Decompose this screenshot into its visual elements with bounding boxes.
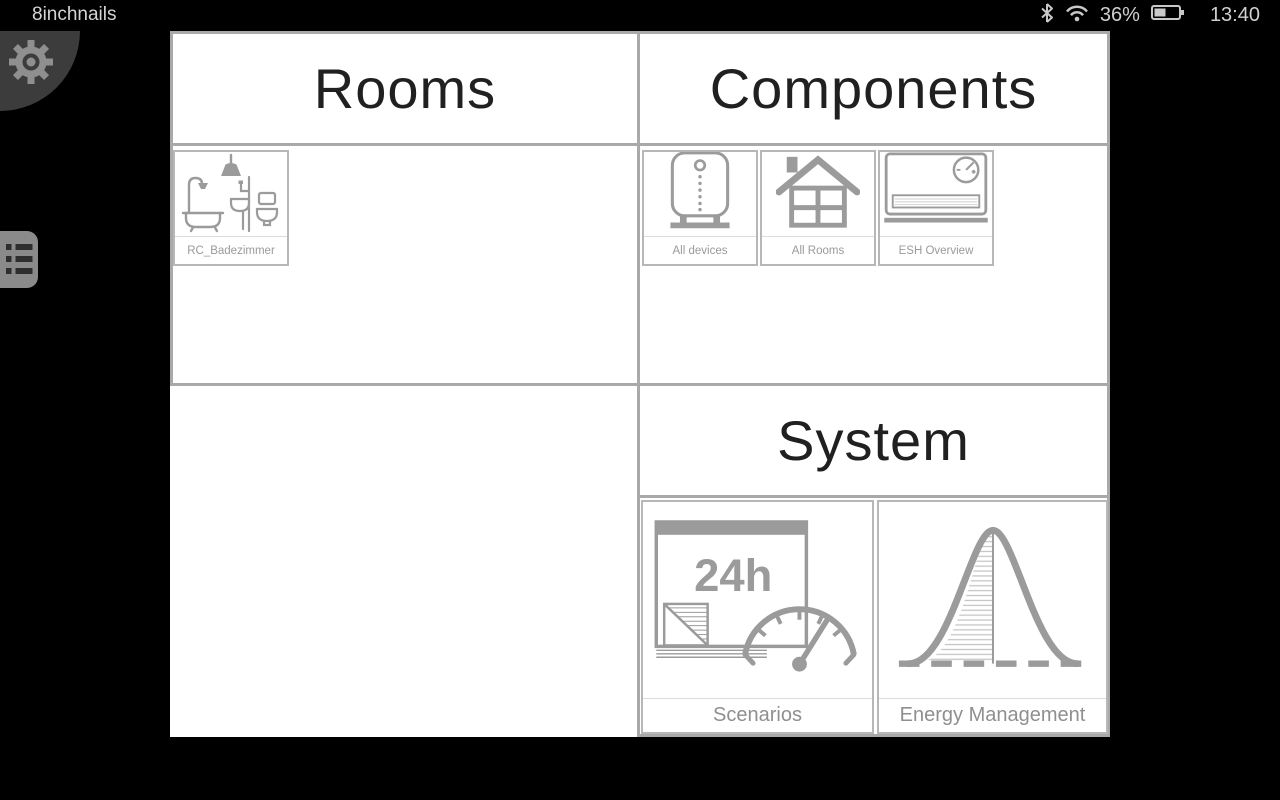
tile-energy-management[interactable]: Energy Management xyxy=(877,500,1108,734)
section-rooms: Rooms xyxy=(170,31,640,386)
tile-label: Scenarios xyxy=(643,698,872,732)
tile-esh-overview[interactable]: ESH Overview xyxy=(878,150,994,266)
smart-device-icon xyxy=(667,152,733,236)
tile-label: Energy Management xyxy=(879,698,1106,732)
tile-scenarios[interactable]: 24h xyxy=(641,500,874,734)
tile-label: RC_Badezimmer xyxy=(175,236,287,264)
tile-all-rooms[interactable]: All Rooms xyxy=(760,150,876,266)
tile-label: All Rooms xyxy=(762,236,874,264)
battery-icon xyxy=(1151,3,1185,28)
bathroom-icon xyxy=(181,152,281,236)
status-bar: 8inchnails 36% xyxy=(0,0,1280,31)
section-components: Components xyxy=(637,31,1110,386)
tile-all-devices[interactable]: All devices xyxy=(642,150,758,266)
bell-curve-icon xyxy=(893,519,1093,682)
clock: 13:40 xyxy=(1210,4,1260,27)
calendar-gauge-icon: 24h xyxy=(650,519,866,682)
components-title: Components xyxy=(640,34,1107,146)
tile-rc-badezimmer[interactable]: RC_Badezimmer xyxy=(173,150,289,266)
battery-percent: 36% xyxy=(1100,4,1140,27)
rooms-title: Rooms xyxy=(173,34,637,146)
calendar-24h-text: 24h xyxy=(694,550,772,601)
menu-tab-button[interactable] xyxy=(0,231,38,288)
status-indicators: 36% 13:40 xyxy=(1040,0,1260,31)
content-area: Rooms xyxy=(170,31,1110,737)
screen: 8inchnails 36% xyxy=(0,0,1280,800)
app-title: 8inchnails xyxy=(32,4,117,26)
settings-button[interactable] xyxy=(0,31,80,111)
android-nav-bar xyxy=(0,737,1280,800)
tile-label: ESH Overview xyxy=(880,236,992,264)
house-icon xyxy=(776,154,860,235)
system-title: System xyxy=(640,386,1107,498)
heater-icon xyxy=(884,152,988,236)
bluetooth-icon xyxy=(1040,2,1054,29)
tile-label: All devices xyxy=(644,236,756,264)
wifi-icon xyxy=(1065,4,1089,27)
section-system: System 24h xyxy=(637,383,1110,737)
